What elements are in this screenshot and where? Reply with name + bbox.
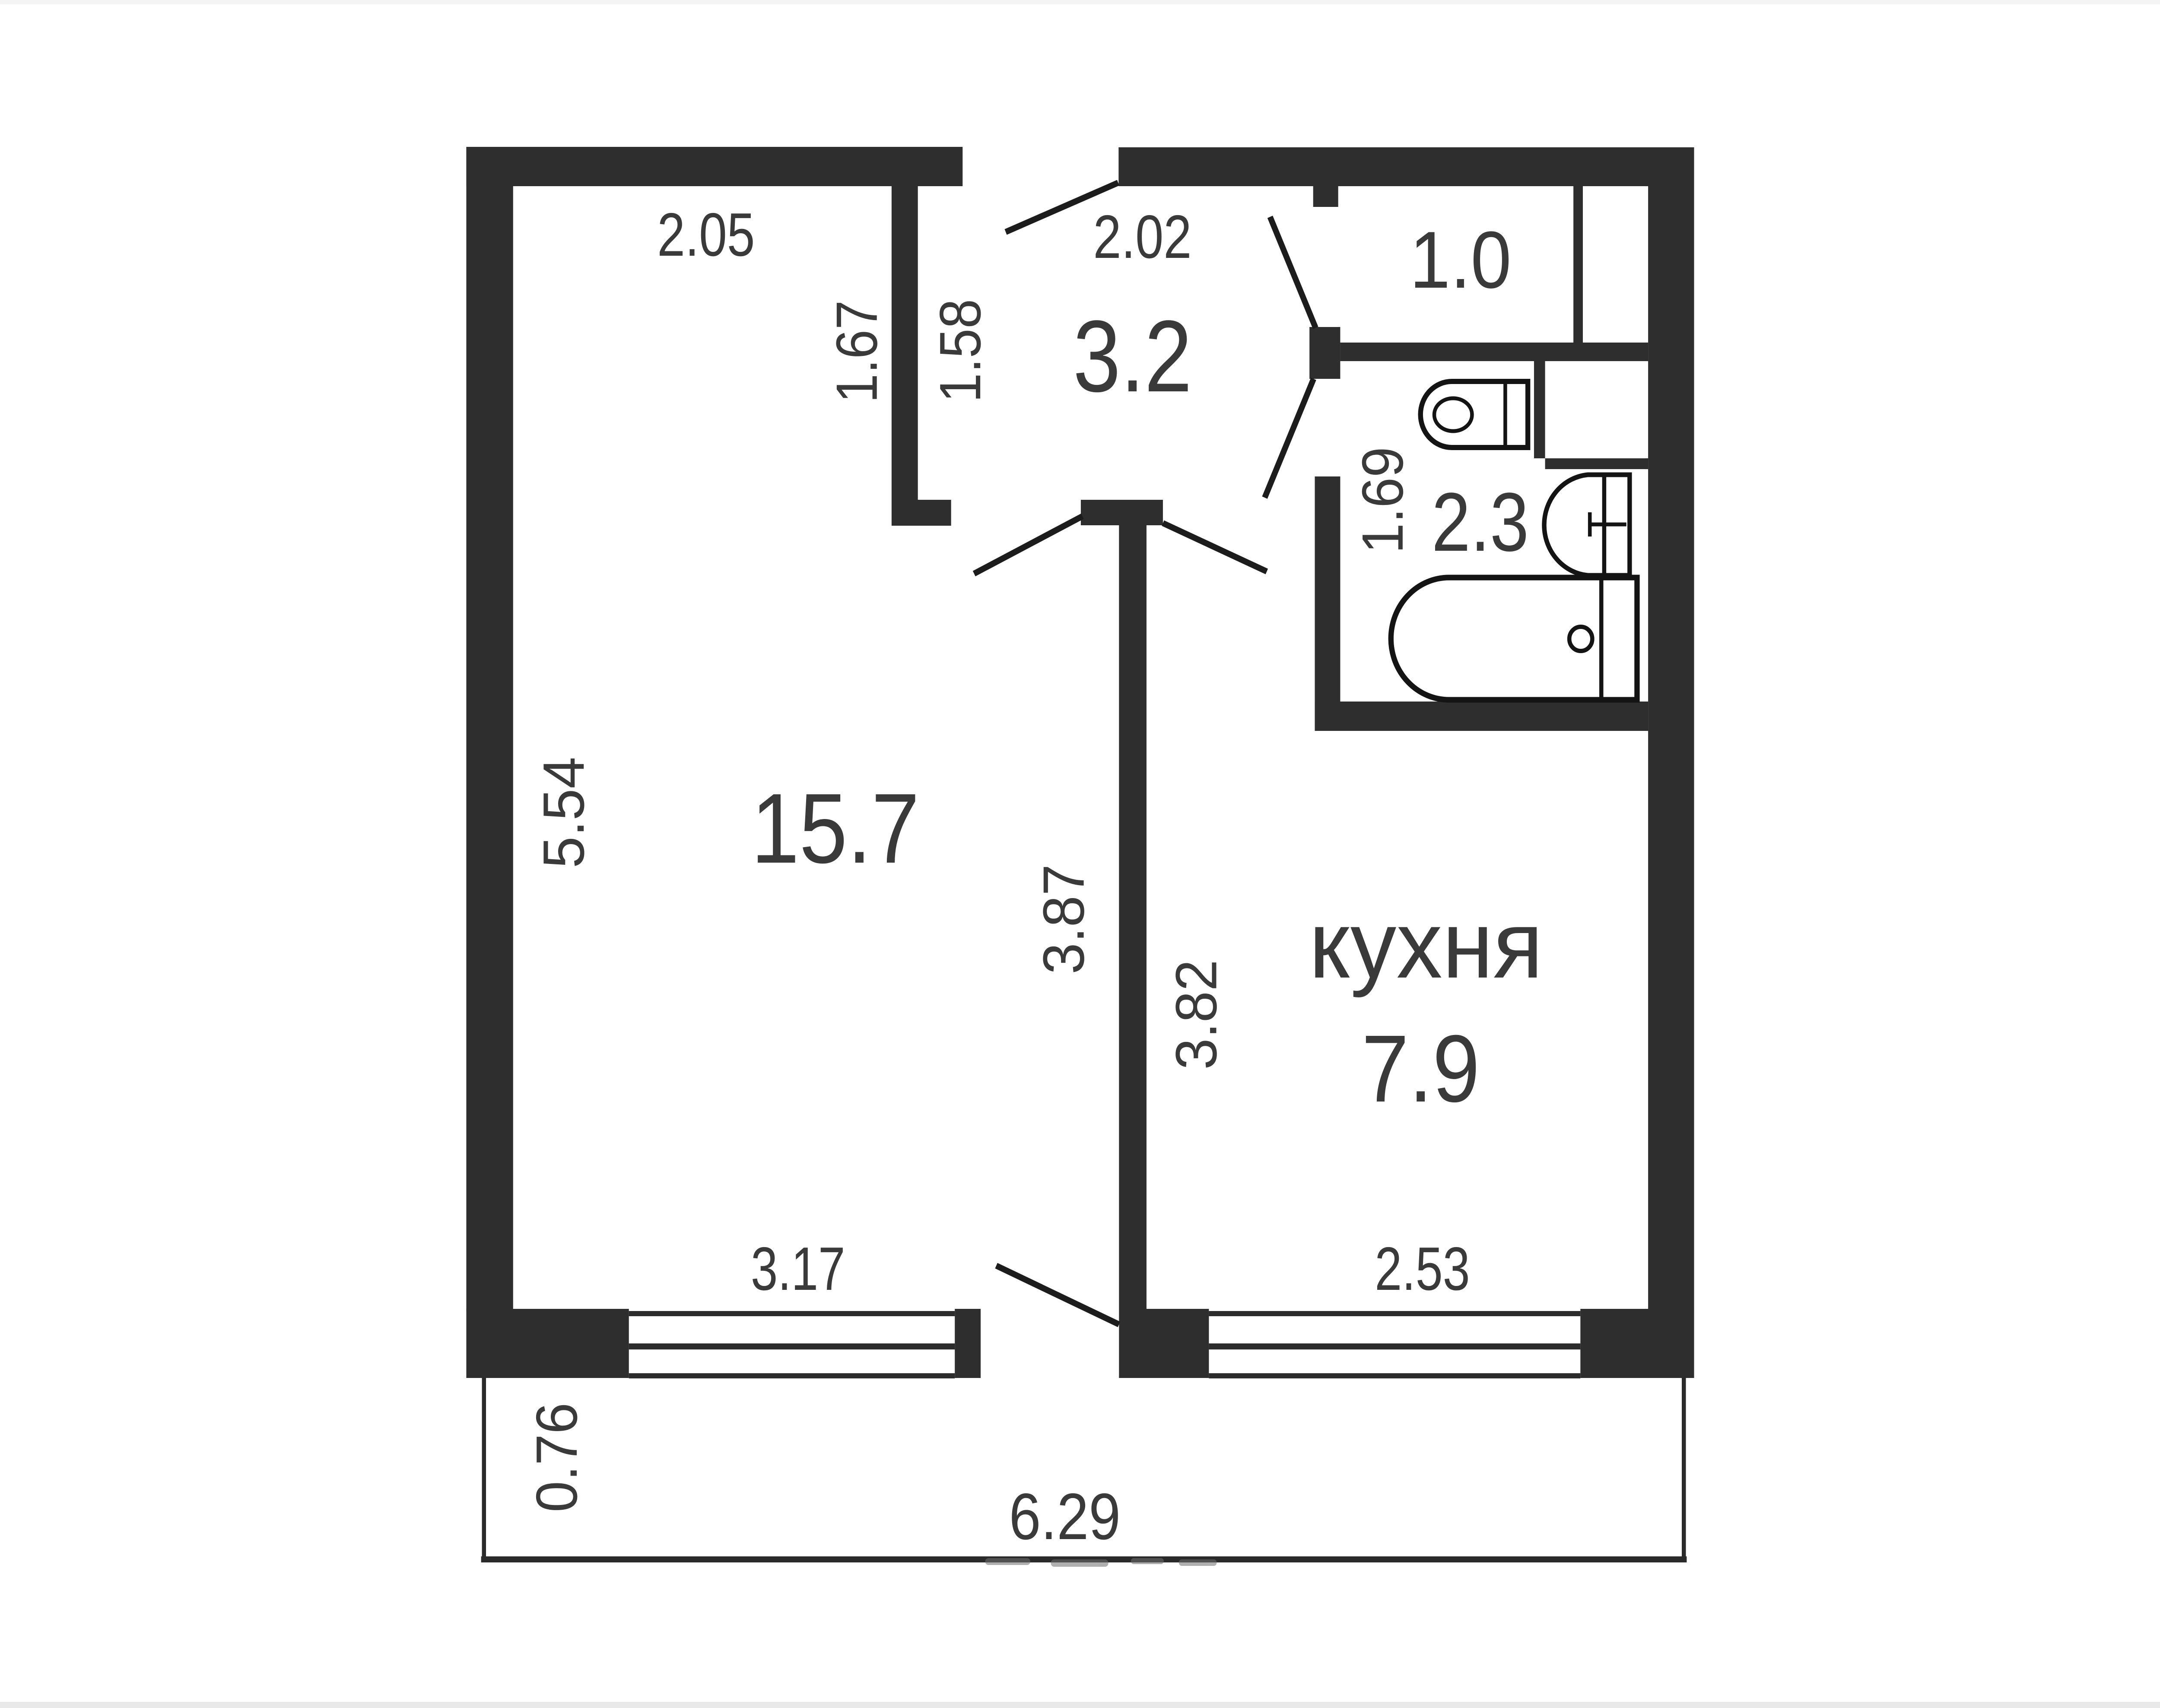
- svg-text:2.02: 2.02: [1093, 203, 1191, 271]
- svg-text:15.7: 15.7: [751, 773, 920, 884]
- svg-text:2.05: 2.05: [657, 201, 755, 269]
- svg-text:3.17: 3.17: [751, 1235, 845, 1303]
- svg-text:3.82: 3.82: [1164, 960, 1229, 1070]
- svg-text:7.9: 7.9: [1362, 1015, 1480, 1122]
- svg-text:2.3: 2.3: [1432, 476, 1529, 568]
- svg-text:кухня: кухня: [1309, 891, 1543, 998]
- svg-text:3.2: 3.2: [1073, 299, 1192, 413]
- svg-text:1.0: 1.0: [1410, 215, 1512, 305]
- svg-text:1.69: 1.69: [1350, 447, 1415, 554]
- svg-text:1.67: 1.67: [825, 300, 889, 403]
- svg-text:6.29: 6.29: [1009, 1480, 1121, 1553]
- svg-text:2.53: 2.53: [1375, 1235, 1470, 1303]
- svg-text:3.87: 3.87: [1032, 864, 1096, 975]
- svg-text:1.58: 1.58: [928, 299, 993, 403]
- svg-text:5.54: 5.54: [531, 757, 596, 868]
- svg-text:0.76: 0.76: [524, 1403, 589, 1512]
